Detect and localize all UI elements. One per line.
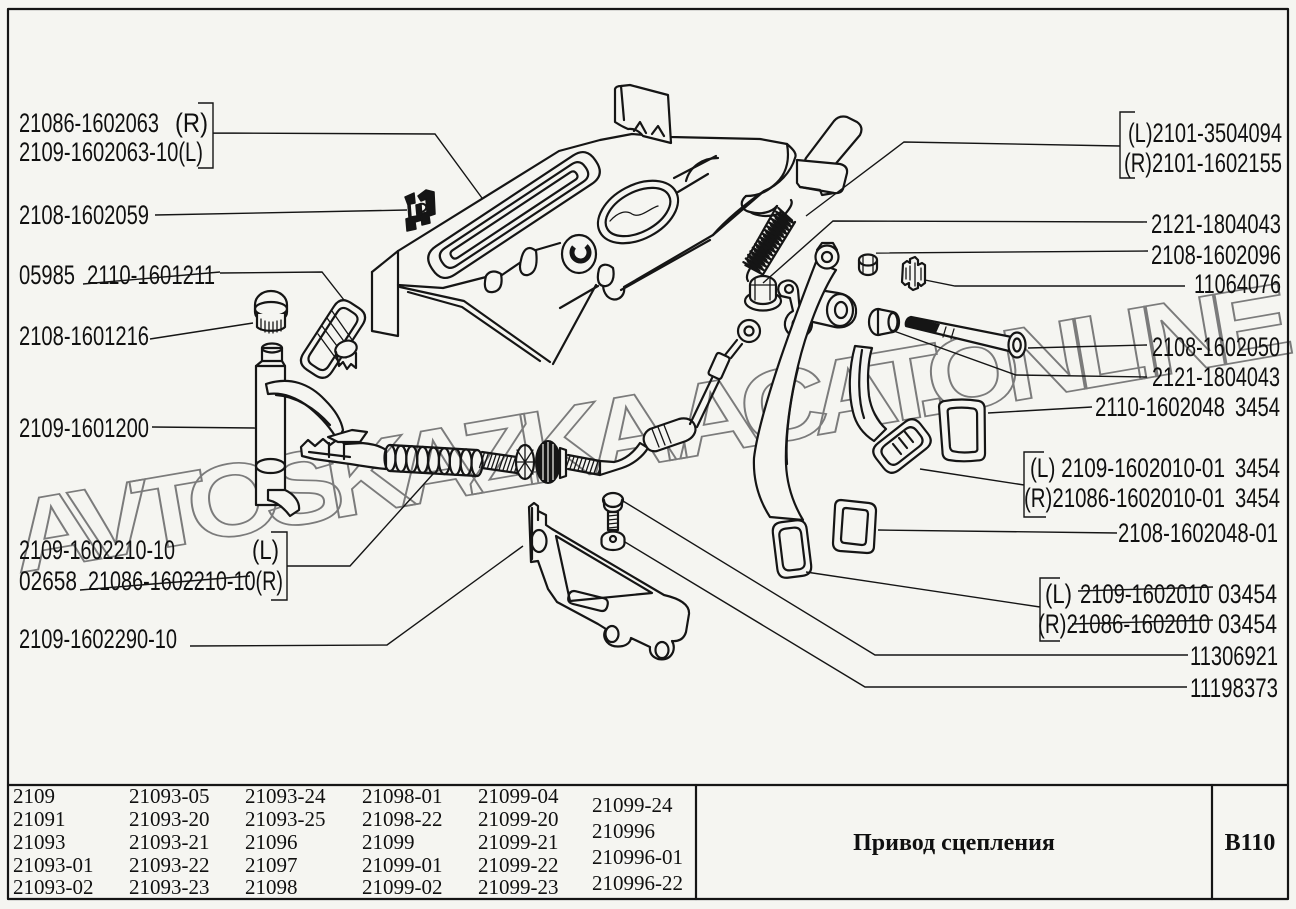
svg-text:11198373: 11198373 (1190, 673, 1278, 703)
svg-text:2109: 2109 (13, 784, 55, 808)
svg-text:21093-24: 21093-24 (245, 784, 326, 808)
svg-text:2109-1602010: 2109-1602010 (1080, 579, 1210, 609)
svg-text:2108-1602048-01: 2108-1602048-01 (1118, 518, 1278, 548)
svg-text:B110: B110 (1225, 830, 1276, 856)
svg-text:21093-02: 21093-02 (13, 875, 94, 899)
svg-text:21099: 21099 (362, 830, 415, 854)
svg-text:03454: 03454 (1218, 579, 1277, 609)
svg-text:21093-05: 21093-05 (129, 784, 210, 808)
svg-text:3454: 3454 (1235, 453, 1280, 483)
svg-text:(L): (L) (1045, 579, 1072, 609)
svg-text:21091: 21091 (13, 807, 66, 831)
svg-text:21086-1602063: 21086-1602063 (19, 108, 159, 138)
svg-text:(L)2101-3504094: (L)2101-3504094 (1128, 118, 1282, 148)
svg-text:21093-22: 21093-22 (129, 853, 210, 877)
svg-text:21099-24: 21099-24 (592, 793, 673, 817)
svg-text:2121-1804043: 2121-1804043 (1151, 209, 1281, 239)
svg-text:21093: 21093 (13, 830, 66, 854)
svg-text:(R): (R) (175, 108, 208, 138)
svg-text:21098-22: 21098-22 (362, 807, 443, 831)
svg-text:21098: 21098 (245, 875, 298, 899)
svg-text:21099-20: 21099-20 (478, 807, 559, 831)
svg-text:21099-23: 21099-23 (478, 875, 559, 899)
svg-text:2121-1804043: 2121-1804043 (1152, 362, 1280, 392)
svg-text:(R)2101-1602155: (R)2101-1602155 (1124, 148, 1282, 178)
svg-text:11064076: 11064076 (1194, 269, 1281, 299)
svg-text:2110-1602048: 2110-1602048 (1095, 392, 1225, 422)
svg-text:21099-21: 21099-21 (478, 830, 559, 854)
svg-text:(R)21086-1602010-01: (R)21086-1602010-01 (1024, 483, 1225, 513)
svg-text:21093-21: 21093-21 (129, 830, 210, 854)
svg-text:03454: 03454 (1218, 609, 1277, 639)
svg-text:21093-20: 21093-20 (129, 807, 210, 831)
svg-text:2108-1602050: 2108-1602050 (1152, 332, 1280, 362)
svg-text:(R)21086-1602010: (R)21086-1602010 (1038, 609, 1210, 639)
svg-text:21098-01: 21098-01 (362, 784, 443, 808)
svg-text:21093-25: 21093-25 (245, 807, 326, 831)
svg-text:210996: 210996 (592, 819, 655, 843)
svg-text:2108-1602096: 2108-1602096 (1151, 240, 1281, 270)
svg-text:21099-02: 21099-02 (362, 875, 443, 899)
svg-text:210996-22: 210996-22 (592, 871, 683, 895)
svg-text:21099-22: 21099-22 (478, 853, 559, 877)
svg-text:(L) 2109-1602010-01: (L) 2109-1602010-01 (1030, 453, 1225, 483)
svg-text:3454: 3454 (1235, 483, 1280, 513)
svg-text:11306921: 11306921 (1190, 641, 1278, 671)
svg-text:21099-04: 21099-04 (478, 784, 559, 808)
svg-text:210996-01: 210996-01 (592, 845, 683, 869)
svg-text:2108-1601216: 2108-1601216 (19, 321, 149, 351)
svg-text:2108-1602059: 2108-1602059 (19, 200, 149, 230)
svg-text:21093-01: 21093-01 (13, 853, 94, 877)
svg-text:05985: 05985 (19, 260, 75, 290)
svg-text:3454: 3454 (1235, 392, 1280, 422)
svg-text:02658: 02658 (19, 566, 77, 596)
svg-text:Привод сцепления: Привод сцепления (853, 830, 1055, 856)
svg-text:(L): (L) (252, 535, 279, 565)
svg-text:21097: 21097 (245, 853, 298, 877)
svg-text:2109-1602210-10: 2109-1602210-10 (19, 535, 175, 565)
svg-text:2109-1602290-10: 2109-1602290-10 (19, 624, 177, 654)
svg-text:2109-1602063-10(L): 2109-1602063-10(L) (19, 137, 203, 167)
svg-text:21093-23: 21093-23 (129, 875, 210, 899)
svg-text:2109-1601200: 2109-1601200 (19, 413, 149, 443)
svg-text:21099-01: 21099-01 (362, 853, 443, 877)
svg-text:21096: 21096 (245, 830, 298, 854)
svg-text:2110-1601211: 2110-1601211 (87, 260, 215, 290)
